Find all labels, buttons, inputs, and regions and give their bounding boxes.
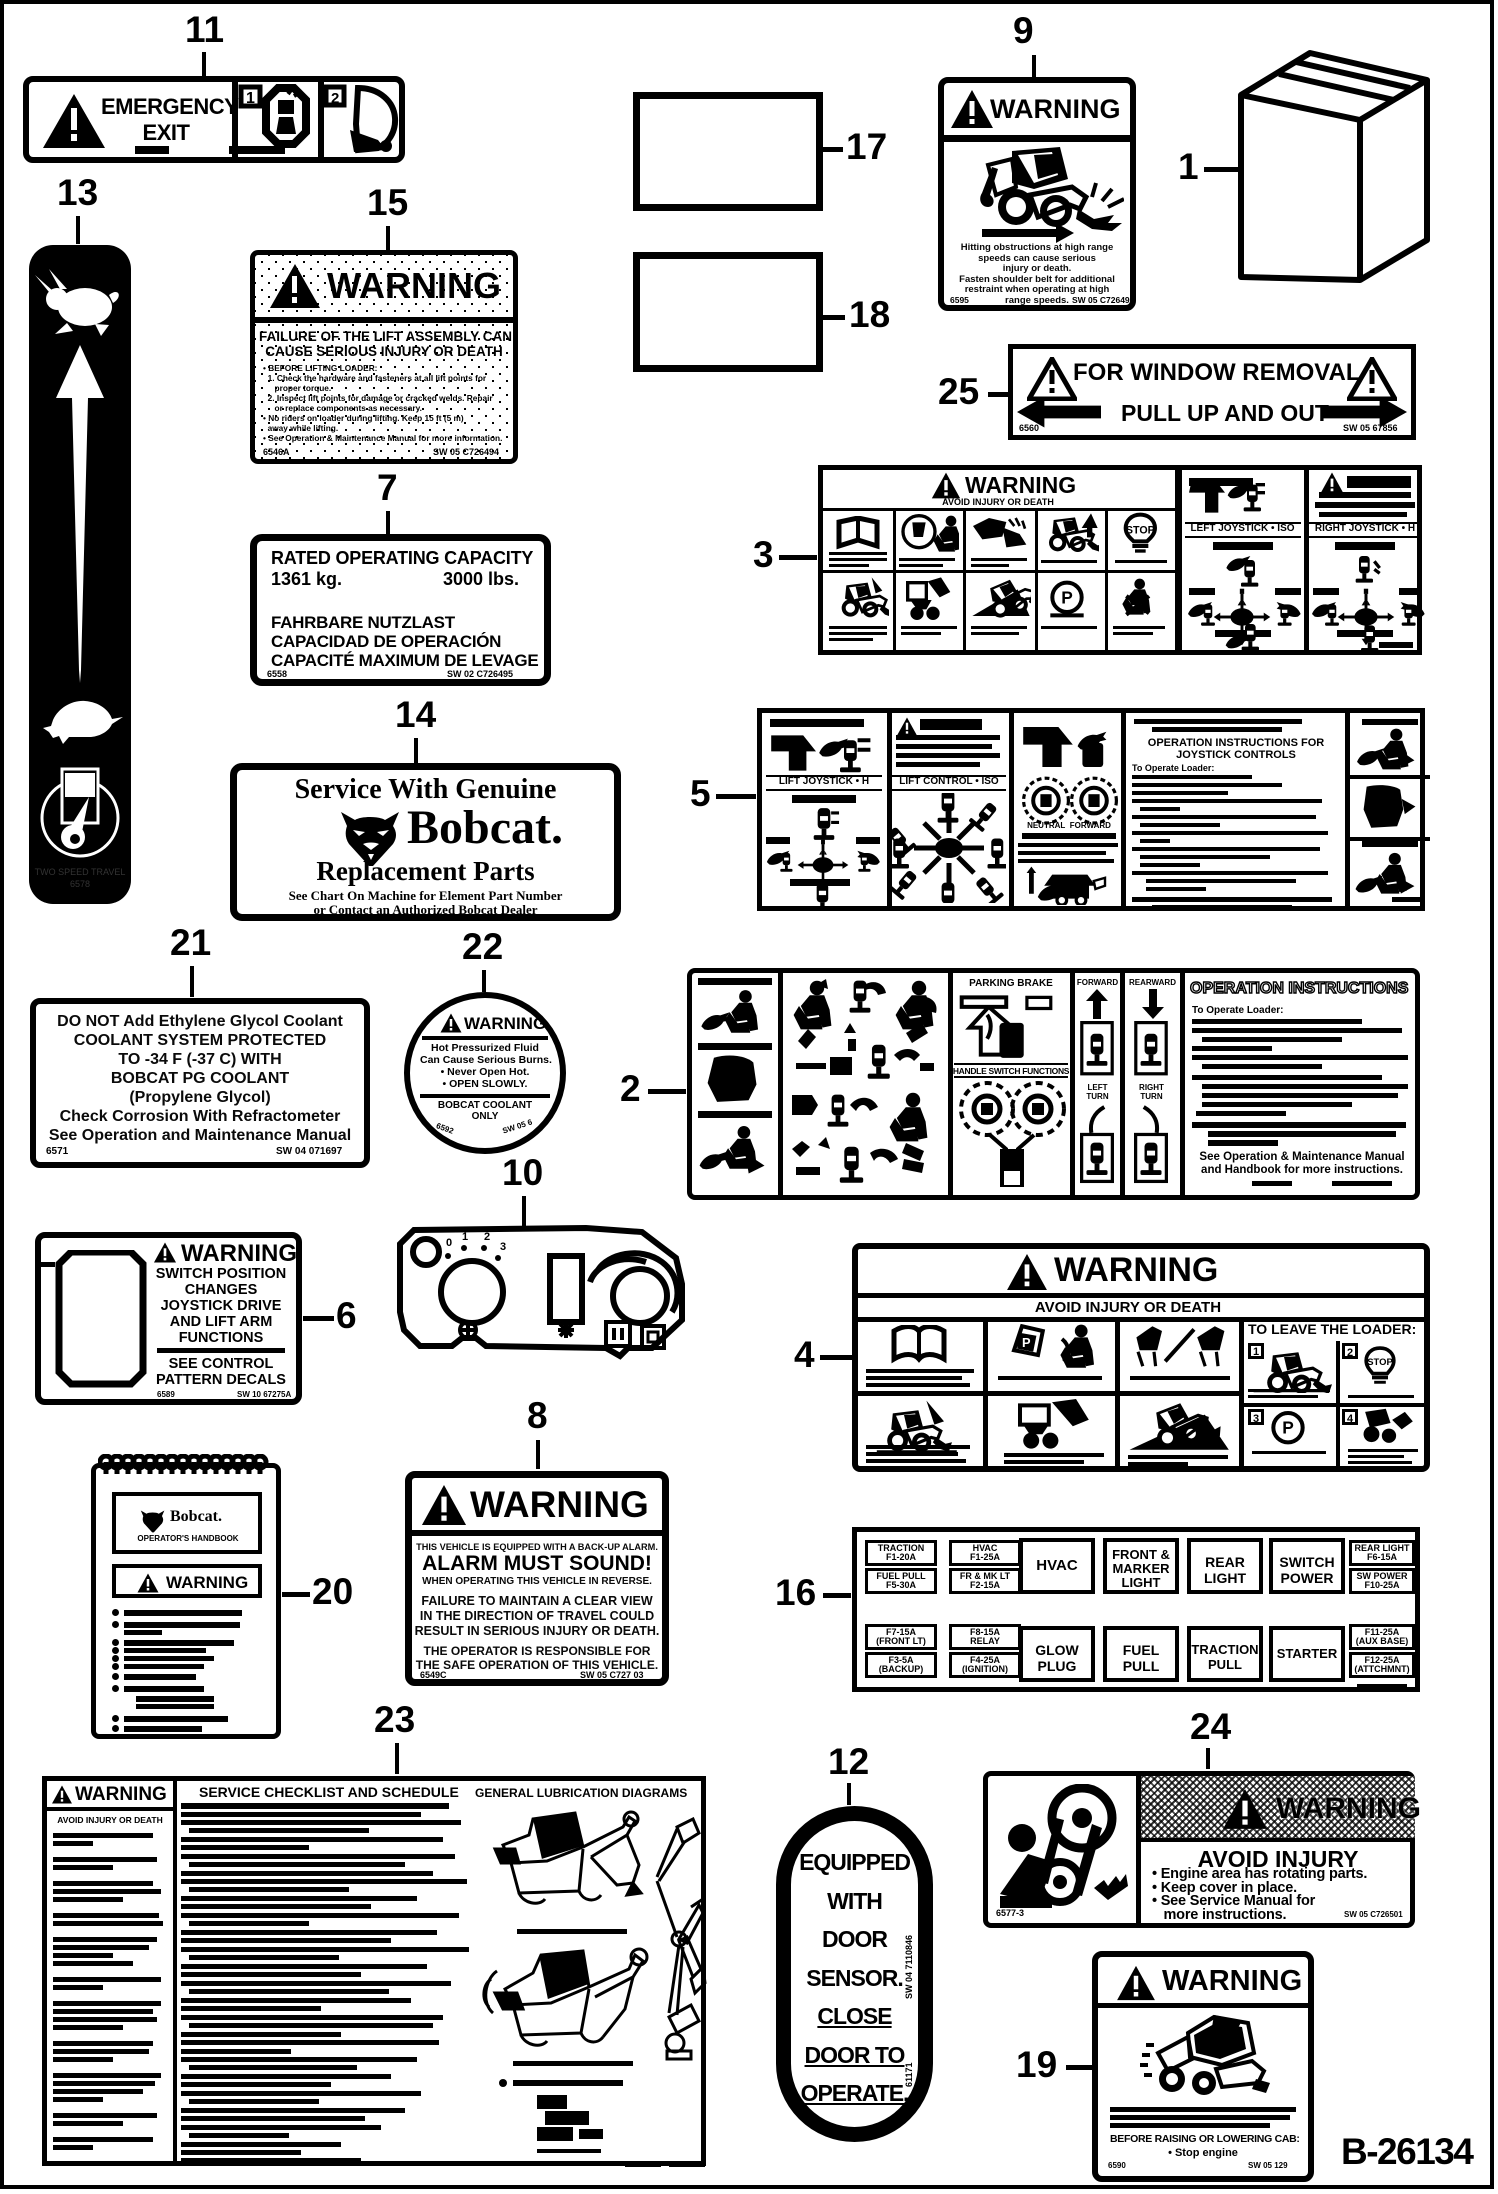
svg-text:P: P — [1061, 587, 1073, 607]
svg-text:P: P — [1022, 1335, 1031, 1350]
svg-text:0: 0 — [446, 1237, 452, 1249]
svg-text:STOP: STOP — [1126, 524, 1155, 536]
svg-text:6578: 6578 — [70, 879, 90, 889]
svg-text:P: P — [1282, 1418, 1294, 1438]
svg-text:STOP: STOP — [1367, 1357, 1393, 1368]
svg-text:TWO SPEED TRAVEL: TWO SPEED TRAVEL — [35, 867, 126, 877]
svg-text:2: 2 — [484, 1231, 490, 1243]
svg-text:1: 1 — [246, 90, 255, 107]
svg-text:2: 2 — [331, 90, 339, 107]
svg-text:1: 1 — [462, 1231, 468, 1243]
svg-text:3: 3 — [500, 1241, 506, 1253]
